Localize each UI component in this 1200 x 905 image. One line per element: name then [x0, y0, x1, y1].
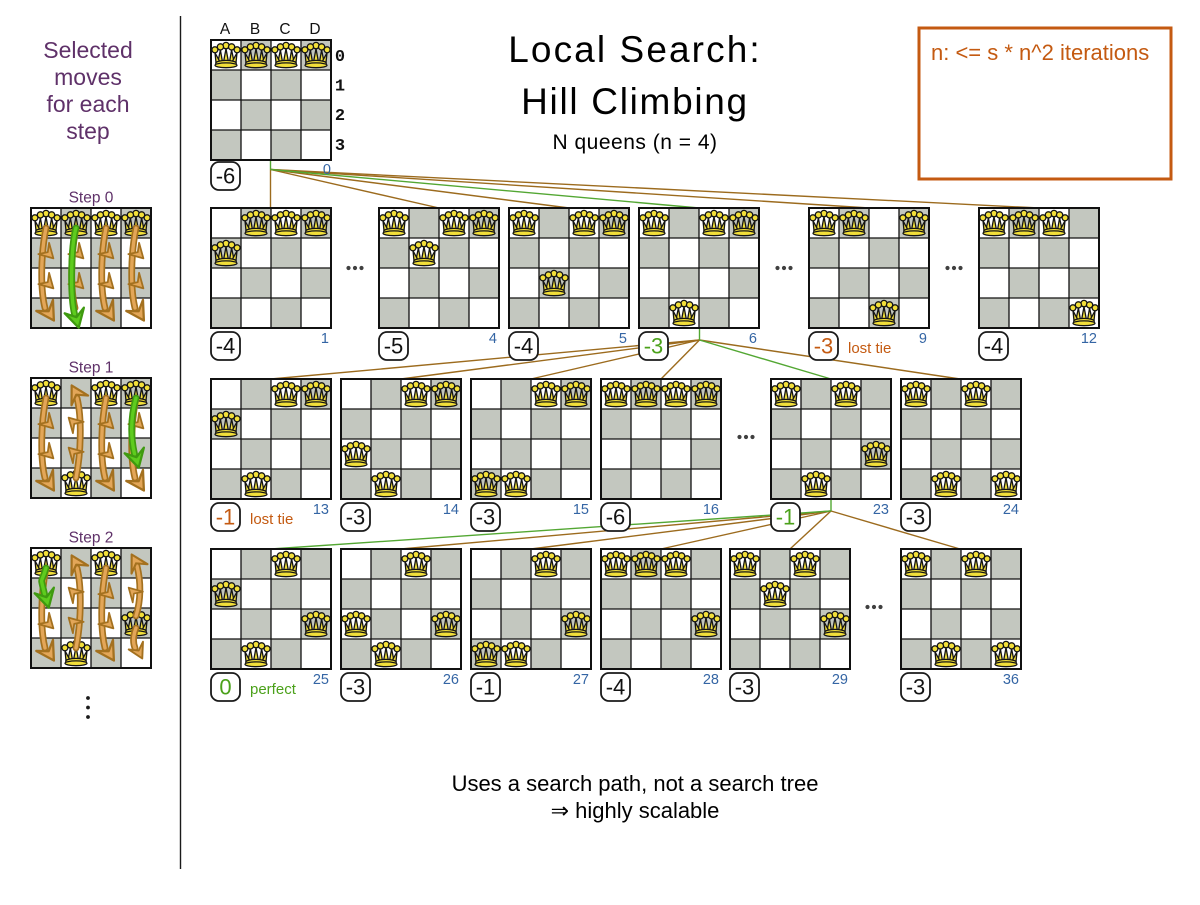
svg-text:15: 15 — [573, 502, 589, 518]
svg-text:2: 2 — [335, 107, 345, 126]
svg-text:-3: -3 — [906, 505, 926, 530]
svg-text:3: 3 — [335, 137, 345, 156]
svg-text:29: 29 — [832, 672, 848, 688]
svg-text:-4: -4 — [216, 334, 236, 359]
svg-text:6: 6 — [749, 331, 757, 347]
svg-text:D: D — [309, 21, 320, 38]
svg-text:26: 26 — [443, 672, 459, 688]
svg-text:-4: -4 — [606, 675, 626, 700]
svg-text:lost tie: lost tie — [250, 511, 293, 528]
svg-text:5: 5 — [619, 331, 627, 347]
svg-text:-1: -1 — [216, 505, 236, 530]
svg-text:-3: -3 — [644, 334, 664, 359]
svg-text:27: 27 — [573, 672, 589, 688]
svg-text:B: B — [250, 21, 260, 38]
svg-text:0: 0 — [323, 162, 331, 178]
svg-text:4: 4 — [489, 331, 497, 347]
svg-text:-3: -3 — [814, 334, 834, 359]
svg-text:Step 2: Step 2 — [69, 530, 114, 547]
svg-text:12: 12 — [1081, 331, 1097, 347]
svg-text:-5: -5 — [384, 334, 404, 359]
svg-text:perfect: perfect — [250, 681, 297, 698]
svg-text:-3: -3 — [735, 675, 755, 700]
svg-text:for each: for each — [46, 91, 129, 117]
svg-text:⇒ highly scalable: ⇒ highly scalable — [551, 798, 720, 823]
svg-text:-3: -3 — [346, 675, 366, 700]
svg-text:28: 28 — [703, 672, 719, 688]
svg-text:-4: -4 — [514, 334, 534, 359]
svg-text:-1: -1 — [476, 675, 496, 700]
svg-text:0: 0 — [335, 48, 345, 67]
svg-text:Step 0: Step 0 — [69, 190, 114, 207]
svg-text:-3: -3 — [346, 505, 366, 530]
svg-text:13: 13 — [313, 502, 329, 518]
svg-text:1: 1 — [335, 78, 345, 97]
svg-text:C: C — [279, 21, 290, 38]
svg-text:N queens (n = 4): N queens (n = 4) — [552, 131, 717, 154]
svg-text:23: 23 — [873, 502, 889, 518]
svg-text:lost tie: lost tie — [848, 340, 891, 357]
svg-text:24: 24 — [1003, 502, 1019, 518]
svg-text:9: 9 — [919, 331, 927, 347]
svg-text:Uses a search path, not a sear: Uses a search path, not a search tree — [452, 771, 819, 796]
svg-text:-6: -6 — [606, 505, 626, 530]
svg-text:Selected: Selected — [43, 37, 133, 63]
svg-text:-4: -4 — [984, 334, 1004, 359]
svg-text:16: 16 — [703, 502, 719, 518]
svg-text:Local Search:: Local Search: — [508, 29, 762, 70]
svg-text:A: A — [220, 21, 231, 38]
svg-text:step: step — [66, 118, 109, 144]
svg-text:0: 0 — [219, 675, 231, 700]
svg-text:Hill Climbing: Hill Climbing — [521, 81, 749, 122]
svg-text:n: <= s * n^2 iterations: n: <= s * n^2 iterations — [931, 40, 1149, 65]
svg-text:1: 1 — [321, 331, 329, 347]
svg-text:-6: -6 — [216, 164, 236, 189]
svg-text:Step 1: Step 1 — [69, 360, 114, 377]
svg-text:36: 36 — [1003, 672, 1019, 688]
svg-text:-3: -3 — [906, 675, 926, 700]
svg-text:25: 25 — [313, 672, 329, 688]
svg-text:moves: moves — [54, 64, 122, 90]
svg-text:14: 14 — [443, 502, 459, 518]
svg-text:-3: -3 — [476, 505, 496, 530]
svg-text:-1: -1 — [776, 505, 796, 530]
